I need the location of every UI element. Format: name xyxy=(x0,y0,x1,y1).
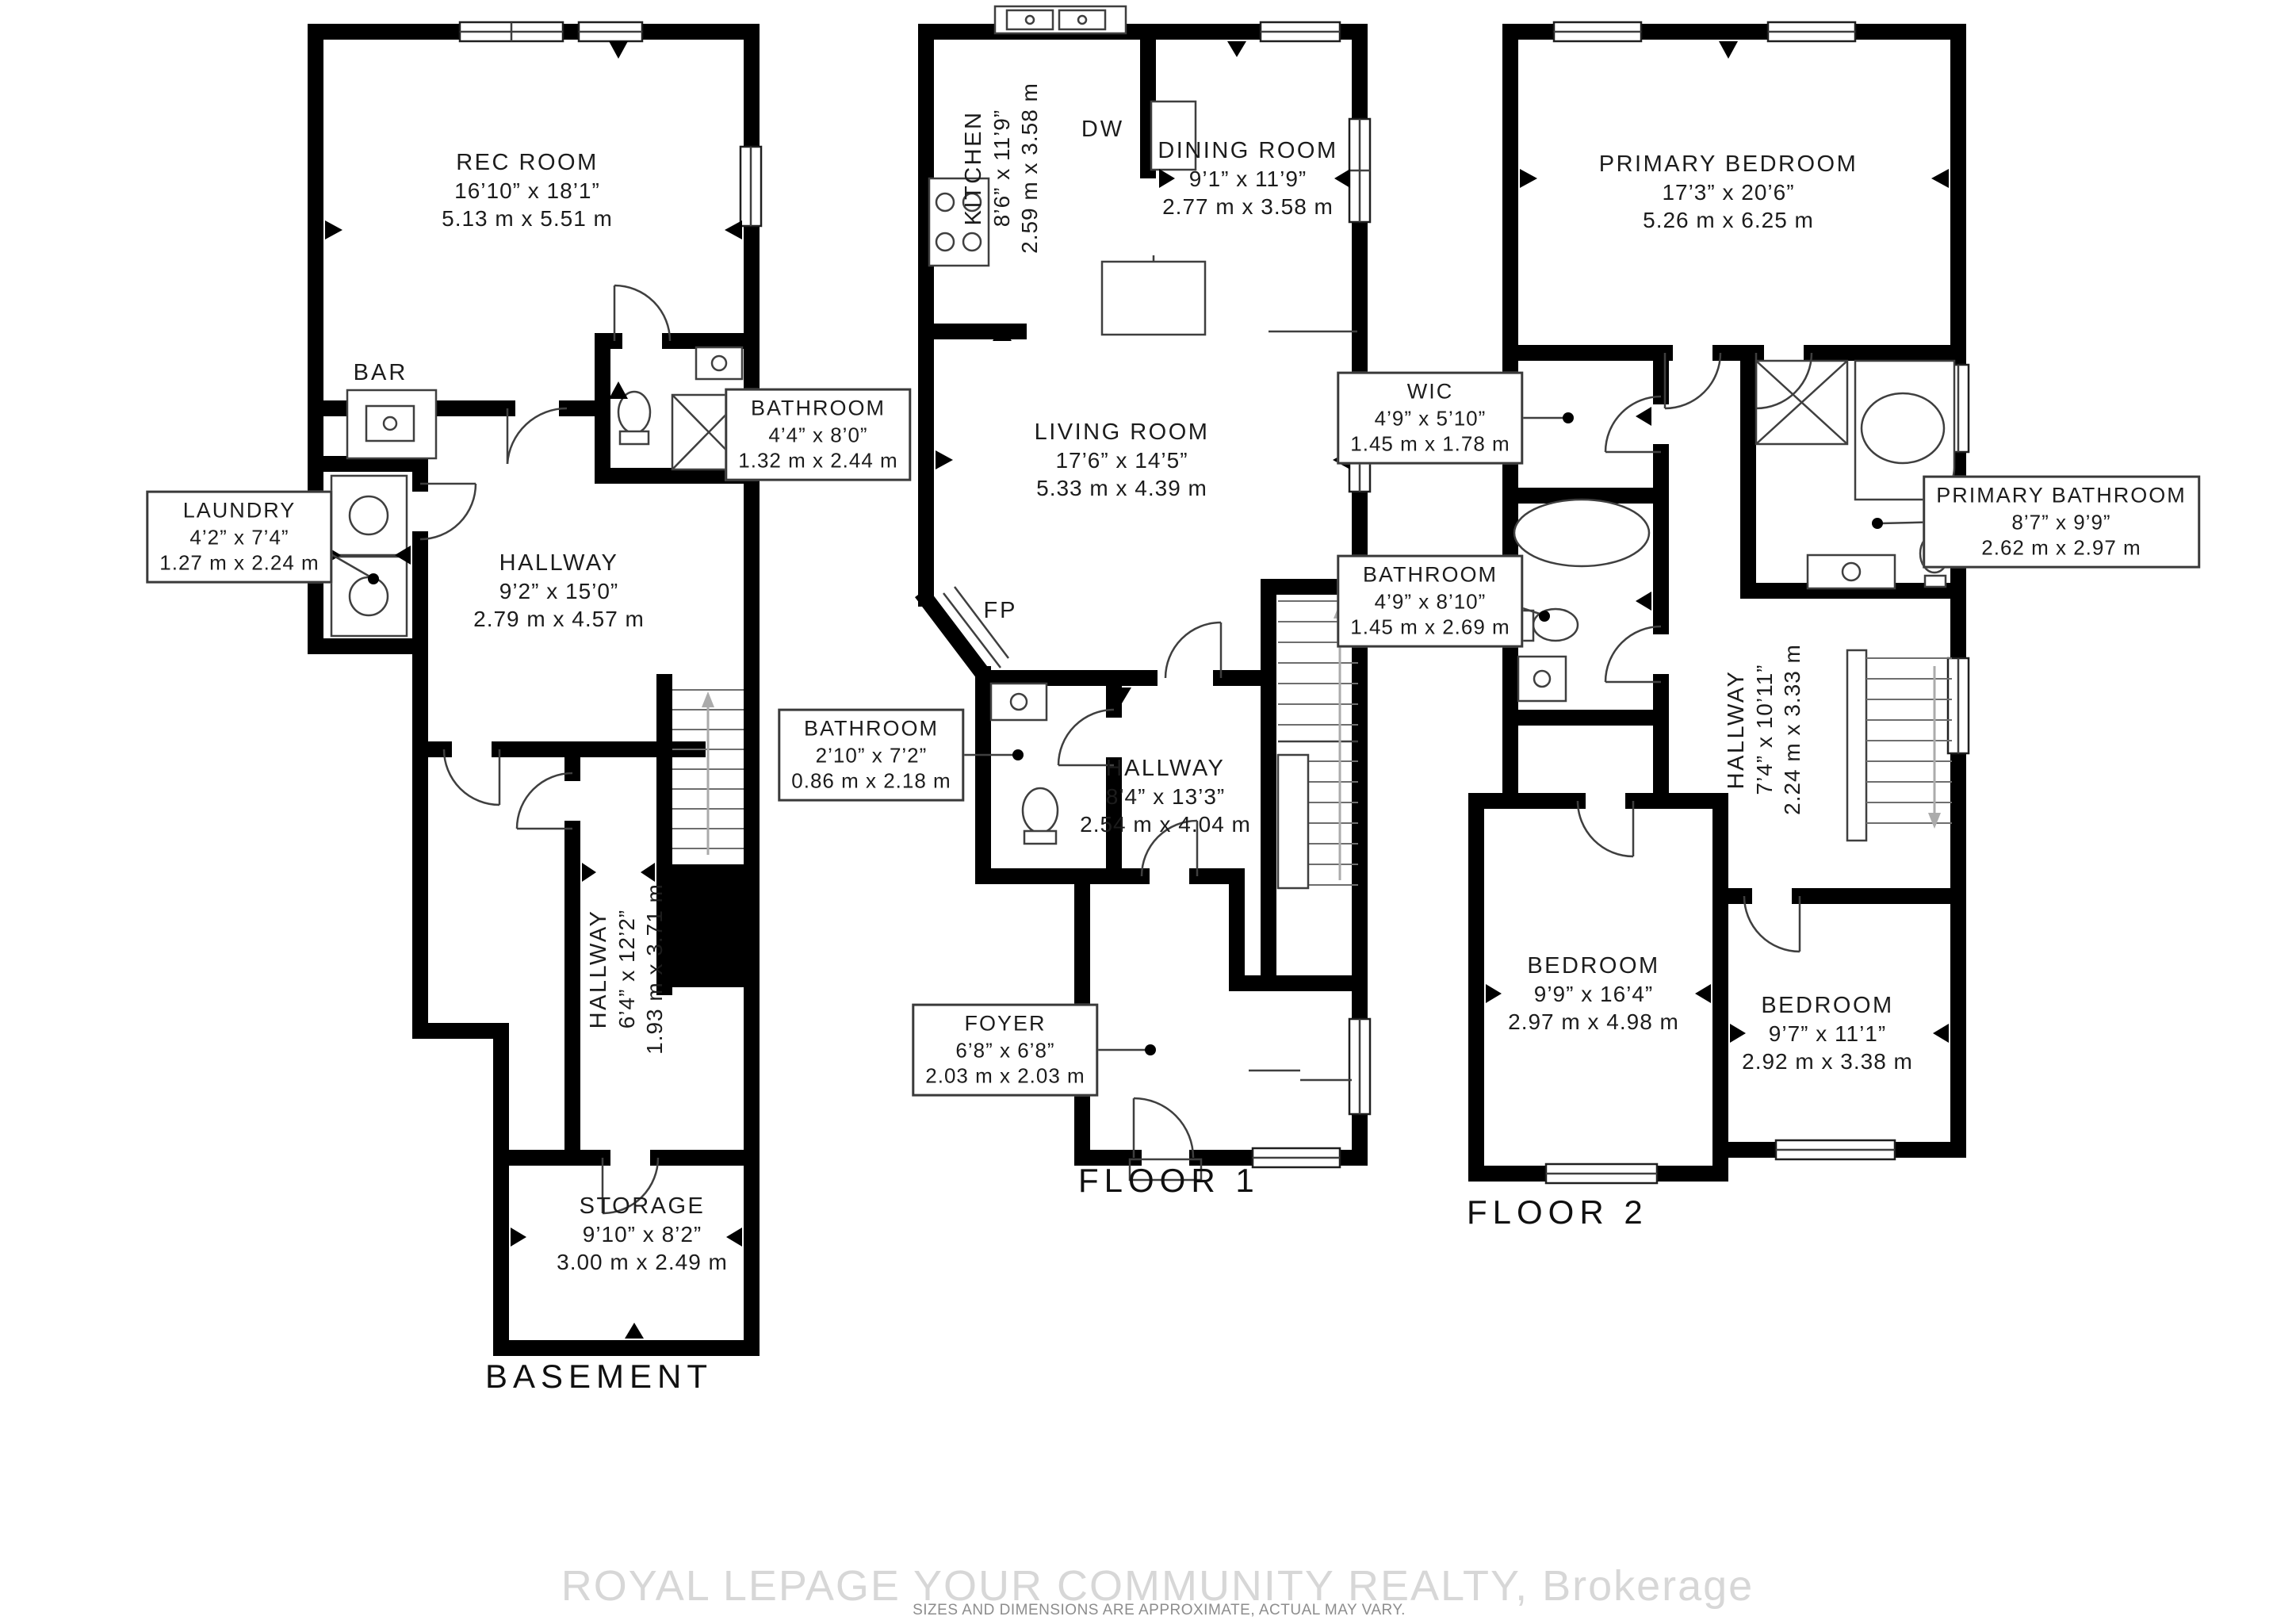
shower-icon xyxy=(1756,361,1847,444)
primary-bathroom-label: PRIMARY BATHROOM 8’7” x 9’9” 2.62 m x 2.… xyxy=(1923,476,2200,569)
room-dim-metric: 1.32 m x 2.44 m xyxy=(738,448,897,474)
room-name: BATHROOM xyxy=(1350,562,1510,589)
room-dim-imperial: 9’9” x 16’4” xyxy=(1508,980,1679,1008)
room-name: DINING ROOM xyxy=(1158,136,1337,165)
basement-hallway-label: HALLWAY 9’2” x 15’0” 2.79 m x 4.57 m xyxy=(473,549,645,633)
floor1-bathroom-fixtures xyxy=(991,684,1058,844)
room-dim-metric: 2.24 m x 3.33 m xyxy=(1778,644,1806,815)
room-dim-metric: 2.62 m x 2.97 m xyxy=(1936,535,2187,561)
room-name: HALLWAY xyxy=(1080,754,1251,783)
room-dim-imperial: 9’10” x 8’2” xyxy=(557,1220,728,1248)
window xyxy=(1349,119,1370,222)
window xyxy=(1261,22,1340,41)
room-dim-metric: 2.97 m x 4.98 m xyxy=(1508,1008,1679,1036)
floor1-bathroom-label: BATHROOM 2’10” x 7’2” 0.86 m x 2.18 m xyxy=(778,709,964,802)
window xyxy=(579,22,642,41)
room-name: FP xyxy=(983,596,1017,625)
floor2-bathroom-label: BATHROOM 4’9” x 8’10” 1.45 m x 2.69 m xyxy=(1337,555,1523,648)
room-dim-metric: 2.79 m x 4.57 m xyxy=(473,605,645,633)
room-dim-imperial: 8’7” x 9’9” xyxy=(1936,509,2187,535)
room-dim-metric: 1.27 m x 2.24 m xyxy=(159,550,319,576)
room-dim-metric: 2.54 m x 4.04 m xyxy=(1080,810,1251,838)
laundry-label: LAUNDRY 4’2” x 7’4” 1.27 m x 2.24 m xyxy=(146,491,332,584)
toilet-icon xyxy=(1023,788,1058,844)
room-dim-imperial: 9’7” x 11’1” xyxy=(1742,1020,1913,1048)
room-dim-imperial: 9’1” x 11’9” xyxy=(1158,165,1337,193)
foyer-label: FOYER 6’8” x 6’8” 2.03 m x 2.03 m xyxy=(912,1004,1098,1097)
room-dim-metric: 2.77 m x 3.58 m xyxy=(1158,193,1337,220)
room-name: LAUNDRY xyxy=(159,498,319,525)
kitchen-label: KITCHEN 8’6” x 11’9” 2.59 m x 3.58 m xyxy=(959,82,1043,254)
room-dim-metric: 5.26 m x 6.25 m xyxy=(1599,206,1858,234)
basement-title: BASEMENT xyxy=(485,1358,713,1396)
room-name: WIC xyxy=(1350,379,1510,406)
room-dim-metric: 1.45 m x 2.69 m xyxy=(1350,615,1510,641)
room-dim-metric: 3.00 m x 2.49 m xyxy=(557,1248,728,1276)
room-name: DW xyxy=(1081,115,1124,144)
room-dim-metric: 5.33 m x 4.39 m xyxy=(1035,474,1210,502)
floor2-title: FLOOR 2 xyxy=(1467,1193,1648,1231)
kitchen-island-icon xyxy=(1102,255,1205,335)
window xyxy=(460,22,563,41)
room-name: LIVING ROOM xyxy=(1035,418,1210,446)
room-name: KITCHEN xyxy=(959,82,988,254)
bathtub-icon xyxy=(1514,500,1649,566)
dryer-icon xyxy=(331,557,407,636)
fireplace-label: FP xyxy=(983,596,1017,625)
basement-stairs xyxy=(672,690,744,855)
room-name: HALLWAY xyxy=(584,883,613,1055)
living-room-label: LIVING ROOM 17’6” x 14’5” 5.33 m x 4.39 … xyxy=(1035,418,1210,502)
room-name: PRIMARY BEDROOM xyxy=(1599,150,1858,178)
floorplan-canvas: REC ROOM 16’10” x 18’1” 5.13 m x 5.51 m … xyxy=(0,0,2296,1624)
dishwasher-label: DW xyxy=(1081,115,1124,144)
room-dim-imperial: 6’4” x 12’2” xyxy=(613,883,641,1055)
sink-icon xyxy=(991,684,1047,720)
sink-icon xyxy=(696,347,742,379)
room-name: BEDROOM xyxy=(1508,952,1679,980)
bar-label: BAR xyxy=(354,358,408,387)
bedroom2-label: BEDROOM 9’7” x 11’1” 2.92 m x 3.38 m xyxy=(1742,991,1913,1075)
room-dim-imperial: 17’6” x 14’5” xyxy=(1035,446,1210,474)
room-dim-metric: 2.03 m x 2.03 m xyxy=(925,1063,1085,1090)
room-dim-metric: 2.92 m x 3.38 m xyxy=(1742,1048,1913,1075)
floor2-hallway-label: HALLWAY 7’4” x 10’11” 2.24 m x 3.33 m xyxy=(1722,644,1806,815)
basement-lower-hallway-label: HALLWAY 6’4” x 12’2” 1.93 m x 3.71 m xyxy=(584,883,668,1055)
window xyxy=(1546,1164,1657,1183)
window xyxy=(740,147,761,226)
room-dim-imperial: 17’3” x 20’6” xyxy=(1599,178,1858,206)
room-dim-imperial: 4’9” x 8’10” xyxy=(1350,588,1510,615)
room-dim-metric: 2.59 m x 3.58 m xyxy=(1016,82,1043,254)
window xyxy=(1948,658,1969,753)
room-dim-imperial: 4’9” x 5’10” xyxy=(1350,405,1510,431)
kitchen-sink-icon xyxy=(995,6,1126,33)
room-dim-metric: 5.13 m x 5.51 m xyxy=(442,205,613,232)
window xyxy=(1253,1148,1340,1167)
room-dim-imperial: 2’10” x 7’2” xyxy=(791,742,951,768)
room-name: BATHROOM xyxy=(791,716,951,743)
floor1-hallway-label: HALLWAY 8’4” x 13’3” 2.54 m x 4.04 m xyxy=(1080,754,1251,838)
room-name: STORAGE xyxy=(557,1192,728,1220)
room-name: HALLWAY xyxy=(1722,644,1751,815)
storage-label: STORAGE 9’10” x 8’2” 3.00 m x 2.49 m xyxy=(557,1192,728,1276)
disclaimer-text: SIZES AND DIMENSIONS ARE APPROXIMATE, AC… xyxy=(913,1602,1406,1619)
room-dim-imperial: 8’6” x 11’9” xyxy=(988,82,1016,254)
vanity-sink-icon xyxy=(1808,555,1895,588)
window xyxy=(1349,1019,1370,1114)
window xyxy=(1776,1140,1895,1159)
room-dim-imperial: 7’4” x 10’11” xyxy=(1751,644,1778,815)
wic-label: WIC 4’9” x 5’10” 1.45 m x 1.78 m xyxy=(1337,372,1523,465)
window xyxy=(1554,22,1641,41)
sink-icon xyxy=(1518,657,1566,701)
room-dim-metric: 1.93 m x 3.71 m xyxy=(641,883,668,1055)
room-name: FOYER xyxy=(925,1011,1085,1038)
room-name: BATHROOM xyxy=(738,396,897,423)
room-name: REC ROOM xyxy=(442,148,613,177)
room-dim-imperial: 8’4” x 13’3” xyxy=(1080,783,1251,810)
room-dim-metric: 0.86 m x 2.18 m xyxy=(791,768,951,795)
primary-bedroom-label: PRIMARY BEDROOM 17’3” x 20’6” 5.26 m x 6… xyxy=(1599,150,1858,234)
room-dim-imperial: 4’2” x 7’4” xyxy=(159,524,319,550)
room-dim-imperial: 4’4” x 8’0” xyxy=(738,422,897,448)
room-name: BEDROOM xyxy=(1742,991,1913,1020)
bedroom1-label: BEDROOM 9’9” x 16’4” 2.97 m x 4.98 m xyxy=(1508,952,1679,1036)
room-dim-imperial: 16’10” x 18’1” xyxy=(442,177,613,205)
room-name: HALLWAY xyxy=(473,549,645,577)
floor2-bathroom-fixtures xyxy=(1514,500,1649,701)
room-name: BAR xyxy=(354,358,408,387)
room-dim-imperial: 9’2” x 15’0” xyxy=(473,577,645,605)
bar-counter-icon xyxy=(347,390,436,458)
room-dim-imperial: 6’8” x 6’8” xyxy=(925,1037,1085,1063)
room-name: PRIMARY BATHROOM xyxy=(1936,483,2187,510)
toilet-icon xyxy=(618,392,650,444)
dining-room-label: DINING ROOM 9’1” x 11’9” 2.77 m x 3.58 m xyxy=(1158,136,1337,220)
room-dim-metric: 1.45 m x 1.78 m xyxy=(1350,431,1510,458)
floor1-title: FLOOR 1 xyxy=(1078,1162,1260,1200)
washer-icon xyxy=(331,476,407,555)
basement-bathroom-label: BATHROOM 4’4” x 8’0” 1.32 m x 2.44 m xyxy=(725,389,911,481)
floor2-stairs xyxy=(1847,650,1952,841)
window xyxy=(1768,22,1855,41)
rec-room-label: REC ROOM 16’10” x 18’1” 5.13 m x 5.51 m xyxy=(442,148,613,232)
